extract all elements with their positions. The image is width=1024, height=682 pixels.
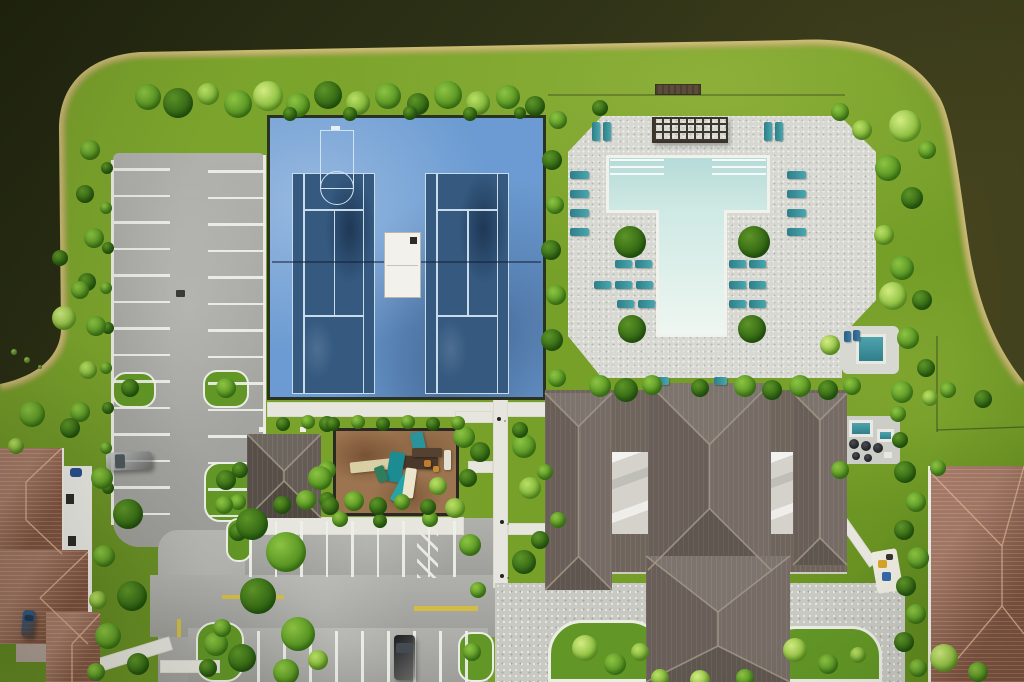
shrub — [276, 417, 290, 431]
tree — [273, 496, 291, 514]
tree — [651, 669, 669, 682]
tree — [314, 81, 342, 109]
shrub — [102, 402, 114, 414]
shrub — [100, 202, 112, 214]
tree — [93, 545, 115, 567]
tree — [546, 285, 566, 305]
tree — [266, 532, 306, 572]
tree — [974, 390, 992, 408]
tree — [922, 390, 938, 406]
tree — [273, 659, 299, 682]
tree — [525, 96, 545, 116]
tree — [375, 83, 401, 109]
tree — [429, 477, 447, 495]
tree — [831, 103, 849, 121]
shrub — [343, 107, 357, 121]
tree — [71, 281, 89, 299]
tree — [892, 432, 908, 448]
palm-tree — [690, 670, 710, 682]
tree — [281, 617, 315, 651]
shrub — [373, 514, 387, 528]
tree — [890, 256, 914, 280]
tree — [912, 290, 932, 310]
palm-tree — [572, 635, 598, 661]
tree — [369, 497, 387, 515]
shrub — [301, 415, 315, 429]
tree — [691, 379, 709, 397]
tree — [875, 155, 901, 181]
tree — [890, 406, 906, 422]
shrub — [100, 362, 112, 374]
tree — [907, 547, 929, 569]
tree — [76, 185, 94, 203]
tree — [240, 578, 276, 614]
tree — [618, 315, 646, 343]
tree — [79, 361, 97, 379]
tree — [228, 644, 256, 672]
tree — [738, 226, 770, 258]
tree — [60, 418, 80, 438]
shrub — [283, 107, 297, 121]
tree — [852, 120, 872, 140]
tree — [215, 496, 233, 514]
tree — [463, 643, 481, 661]
tree — [197, 83, 219, 105]
tree — [84, 228, 104, 248]
tree — [897, 327, 919, 349]
tree — [420, 499, 436, 515]
tree — [308, 466, 332, 490]
tree — [906, 492, 926, 512]
tree — [512, 422, 528, 438]
shrub — [11, 349, 17, 355]
tree — [512, 550, 536, 574]
tree — [459, 469, 477, 487]
shrub — [514, 107, 526, 119]
palm-tree — [820, 335, 840, 355]
tree — [906, 604, 926, 624]
shrub — [376, 417, 390, 431]
tree — [592, 100, 608, 116]
tree — [968, 662, 988, 682]
shrub — [401, 415, 415, 429]
palm-tree — [253, 81, 283, 111]
palm-tree — [879, 282, 907, 310]
tree — [434, 81, 462, 109]
tree — [891, 381, 913, 403]
tree — [80, 140, 100, 160]
tree — [459, 534, 481, 556]
tree — [762, 380, 782, 400]
tree — [121, 379, 139, 397]
tree — [909, 659, 927, 677]
tree — [470, 442, 490, 462]
tree — [512, 434, 536, 458]
tree — [163, 88, 193, 118]
tree — [614, 226, 646, 258]
tree — [738, 315, 766, 343]
shrub — [326, 417, 340, 431]
tree — [127, 653, 149, 675]
tree — [394, 494, 410, 510]
tree — [8, 438, 24, 454]
tree — [19, 401, 45, 427]
tree — [344, 491, 364, 511]
tree — [117, 581, 147, 611]
tree — [113, 499, 143, 529]
tree — [87, 663, 105, 681]
tree — [542, 150, 562, 170]
tree — [546, 196, 564, 214]
tree — [496, 85, 520, 109]
tree — [549, 111, 567, 129]
tree — [604, 653, 626, 675]
aerial-photo-community-amenities — [0, 0, 1024, 682]
shrub — [426, 417, 440, 431]
shrub — [351, 415, 365, 429]
tree — [930, 460, 946, 476]
tree — [470, 582, 486, 598]
tree — [901, 187, 923, 209]
tree — [550, 512, 566, 528]
shrub — [38, 365, 42, 369]
tree — [642, 375, 662, 395]
tree — [917, 359, 935, 377]
tree — [850, 647, 866, 663]
tree — [789, 375, 811, 397]
palm-tree — [52, 306, 76, 330]
tree — [548, 369, 566, 387]
tree — [894, 461, 916, 483]
palm-tree — [930, 644, 958, 672]
tree — [589, 375, 611, 397]
tree — [321, 497, 339, 515]
tree — [818, 380, 838, 400]
tree — [541, 329, 563, 351]
tree — [874, 225, 894, 245]
tree — [831, 461, 849, 479]
shrub — [451, 416, 465, 430]
tree — [52, 250, 68, 266]
tree — [843, 377, 861, 395]
shrub — [100, 442, 112, 454]
tree — [86, 316, 106, 336]
vegetation-layer — [0, 0, 1024, 682]
tree — [224, 90, 252, 118]
tree — [296, 490, 316, 510]
tree — [734, 375, 756, 397]
shrub — [100, 282, 112, 294]
tree — [736, 669, 754, 682]
tree — [95, 623, 121, 649]
tree — [894, 520, 914, 540]
shrub — [24, 357, 30, 363]
palm-tree — [889, 110, 921, 142]
tree — [531, 531, 549, 549]
palm-tree — [783, 638, 807, 662]
tree — [614, 378, 638, 402]
tree — [216, 378, 236, 398]
tree — [537, 464, 553, 480]
shrub — [403, 106, 417, 120]
tree — [519, 477, 541, 499]
tree — [91, 467, 113, 489]
tree — [135, 84, 161, 110]
tree — [894, 632, 914, 652]
tree — [236, 508, 268, 540]
tree — [89, 591, 107, 609]
shrub — [102, 242, 114, 254]
tree — [541, 240, 561, 260]
tree — [199, 659, 217, 677]
tree — [940, 382, 956, 398]
shrub — [463, 107, 477, 121]
tree — [445, 498, 465, 518]
tree — [631, 643, 649, 661]
tree — [213, 619, 231, 637]
tree — [918, 141, 936, 159]
tree — [216, 470, 236, 490]
tree — [896, 576, 916, 596]
shrub — [101, 162, 113, 174]
tree — [308, 650, 328, 670]
tree — [818, 654, 838, 674]
